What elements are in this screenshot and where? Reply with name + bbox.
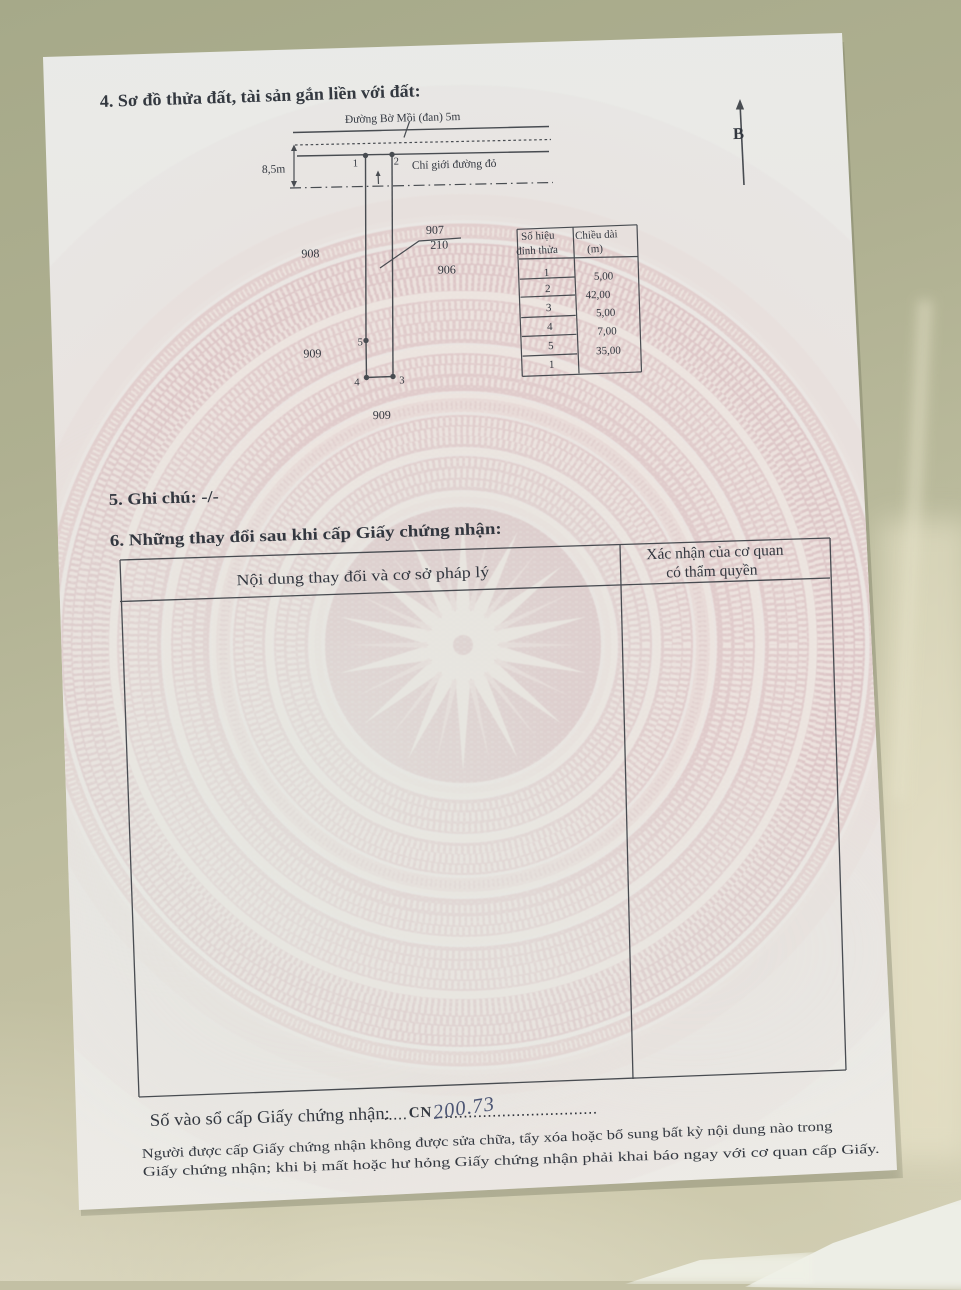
svg-text:2: 2 [545,283,551,295]
svg-text:Số hiệu: Số hiệu [521,229,555,242]
svg-text:(m): (m) [587,243,604,256]
svg-text:5. Ghi chú: -/-: 5. Ghi chú: -/- [109,487,220,509]
svg-text:Đường Bờ Mồi (đan) 5m: Đường Bờ Mồi (đan) 5m [345,110,461,126]
svg-text:B: B [733,124,745,143]
svg-text:908: 908 [301,246,319,260]
svg-text:1: 1 [549,359,555,371]
svg-text:5: 5 [548,340,554,352]
svg-text:909: 909 [373,408,391,422]
svg-text:Chiều dài: Chiều dài [575,228,618,242]
svg-text:3: 3 [546,302,552,314]
svg-text:CN: CN [409,1105,433,1122]
svg-text:1: 1 [544,267,550,279]
svg-text:4. Sơ đồ thửa đất, tài sản gắn: 4. Sơ đồ thửa đất, tài sản gắn liền với … [99,80,420,111]
svg-text:42,00: 42,00 [585,289,610,301]
svg-text:6. Những thay đổi sau khi cấp: 6. Những thay đổi sau khi cấp Giấy chứng… [110,519,502,550]
svg-text:Nội dung thay đổi và cơ sở phá: Nội dung thay đổi và cơ sở pháp lý [236,564,490,589]
svg-text:35,00: 35,00 [596,345,621,357]
svg-text:1: 1 [353,158,358,169]
svg-text:200.73: 200.73 [431,1093,496,1124]
svg-text:210: 210 [430,238,448,252]
svg-text:4: 4 [547,321,553,333]
svg-text:đỉnh thửa: đỉnh thửa [516,244,558,258]
svg-text:2: 2 [394,156,399,167]
svg-text:Xác nhận của cơ quan: Xác nhận của cơ quan [646,542,784,564]
svg-text:7,00: 7,00 [597,325,617,337]
svg-text:Chỉ giới đường đỏ: Chỉ giới đường đỏ [412,158,497,172]
svg-text:909: 909 [303,346,321,360]
svg-text:3: 3 [399,375,404,386]
svg-text:có thẩm quyền: có thẩm quyền [666,561,758,581]
svg-text:5,00: 5,00 [594,270,614,282]
svg-text:8,5m: 8,5m [262,163,286,176]
svg-text:Số vào sổ cấp Giấy chứng nhận:: Số vào sổ cấp Giấy chứng nhận: [150,1103,390,1130]
svg-text:4: 4 [354,377,360,388]
svg-text:906: 906 [438,262,456,276]
svg-text:907: 907 [426,223,444,237]
svg-text:5,00: 5,00 [596,307,616,319]
svg-text:5: 5 [357,337,362,348]
